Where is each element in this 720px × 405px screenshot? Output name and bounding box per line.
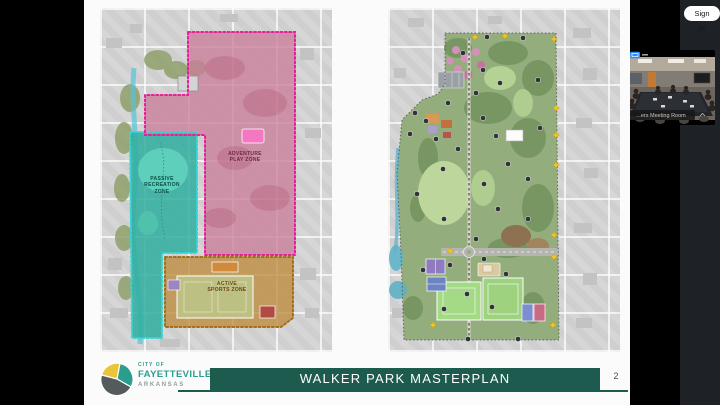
svg-text:...ers Meeting Room: ...ers Meeting Room: [636, 113, 686, 119]
parking-lot: [438, 72, 464, 88]
page-number: 2: [606, 371, 626, 381]
entry-drive: [441, 247, 559, 258]
sign-in-button[interactable]: Sign in: [684, 6, 720, 21]
pond-lawn: [138, 148, 188, 192]
gallery-view-icon: [630, 52, 640, 58]
video-name-label: ...ers Meeting Room: [629, 110, 705, 120]
title-underline: [178, 390, 628, 392]
masterplan-graphic: [388, 8, 620, 352]
minimize-video-icon: [642, 54, 648, 56]
playground-highlight: [242, 129, 264, 143]
conference-room-video: ...ers Meeting Room: [628, 50, 715, 125]
presentation-slide: ADVENTURE PLAY ZONE PASSIVE RECREATION Z…: [84, 0, 630, 405]
participant-video[interactable]: ...ers Meeting Room: [628, 50, 715, 125]
fayetteville-logo: [100, 362, 134, 396]
plaza: [478, 263, 500, 276]
meeting-window: Sign in: [0, 0, 720, 405]
sports-fields: [437, 278, 523, 320]
slide-title-banner: WALKER PARK MASTERPLAN: [210, 368, 600, 390]
masterplan-map: [388, 8, 620, 352]
zoning-map: ADVENTURE PLAY ZONE PASSIVE RECREATION Z…: [100, 8, 332, 352]
pavilion-building: [506, 130, 523, 141]
zoning-map-graphic: [100, 8, 332, 352]
